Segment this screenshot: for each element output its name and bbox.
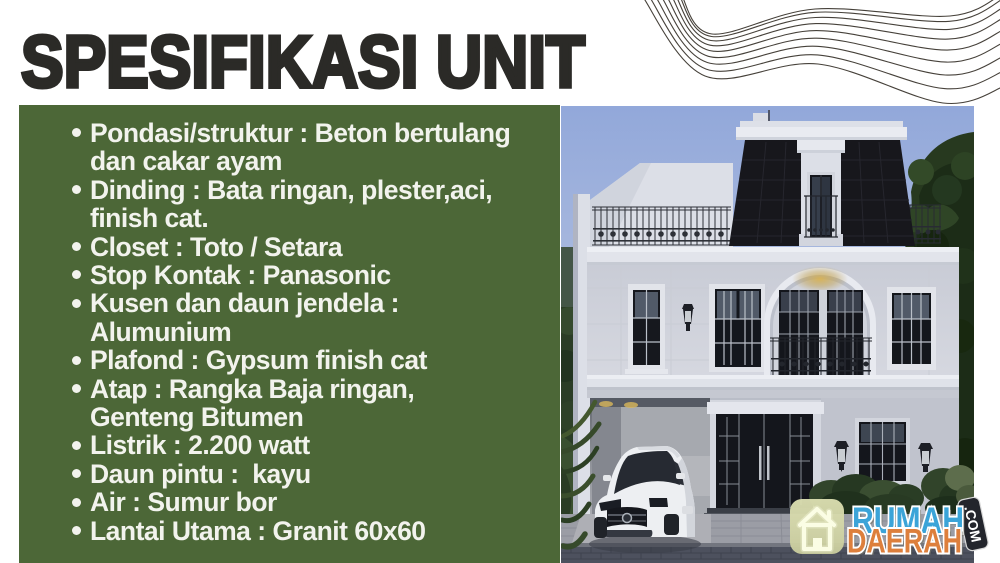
svg-text:SPESIFIKASI UNIT: SPESIFIKASI UNIT bbox=[21, 22, 585, 100]
svg-text:DAERAH: DAERAH bbox=[847, 523, 962, 561]
